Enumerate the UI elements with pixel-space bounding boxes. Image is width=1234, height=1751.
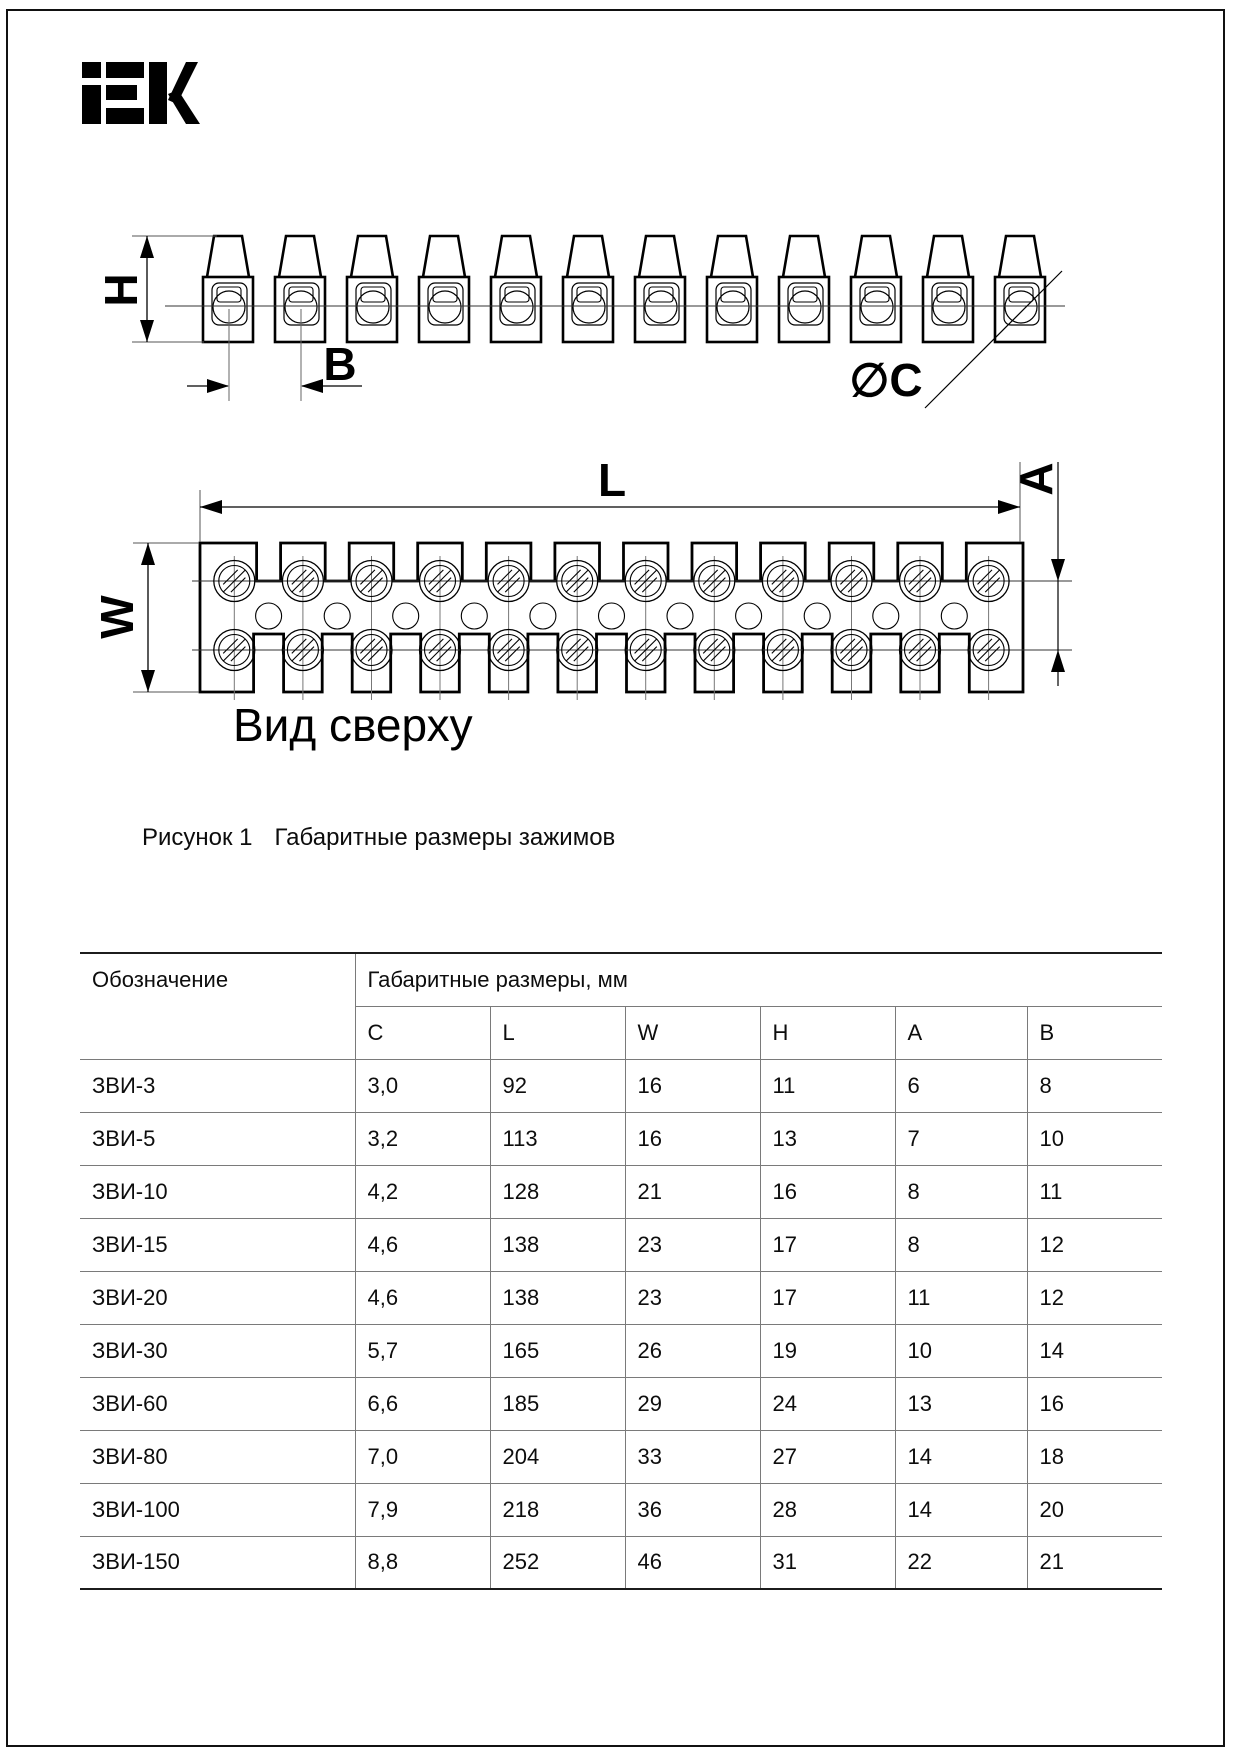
dim-label-C: ∅C	[849, 354, 922, 406]
table-row: ЗВИ-5 3,2 113 16 13 7 10	[80, 1112, 1162, 1165]
dim-label-L: L	[598, 454, 626, 506]
row-name: ЗВИ-60	[80, 1377, 355, 1430]
top-view-outline	[200, 543, 1023, 692]
subheader-L: L	[490, 1006, 625, 1059]
col-header-dimensions: Габаритные размеры, мм	[355, 953, 1162, 1006]
row-name: ЗВИ-3	[80, 1059, 355, 1112]
subheader-A: A	[895, 1006, 1027, 1059]
row-name: ЗВИ-150	[80, 1536, 355, 1589]
document-page: H B ∅C	[0, 0, 1234, 1751]
row-name: ЗВИ-100	[80, 1483, 355, 1536]
figure-drawings: H B ∅C	[0, 0, 1234, 810]
dimension-W: W	[91, 543, 199, 692]
table-row: ЗВИ-30 5,7 165 26 19 10 14	[80, 1324, 1162, 1377]
table-row: ЗВИ-80 7,0 204 33 27 14 18	[80, 1430, 1162, 1483]
row-name: ЗВИ-80	[80, 1430, 355, 1483]
dimension-L: L	[200, 454, 1020, 542]
top-view-drawing: L A W Вид сверху	[91, 454, 1072, 751]
dim-label-A: A	[1010, 462, 1062, 495]
dimension-H: H	[95, 236, 217, 342]
col-header-designation: Обозначение	[80, 953, 355, 1059]
side-view-drawing: H B ∅C	[95, 236, 1065, 408]
dim-label-H: H	[95, 273, 147, 306]
table-row: ЗВИ-15 4,6 138 23 17 8 12	[80, 1218, 1162, 1271]
row-name: ЗВИ-10	[80, 1165, 355, 1218]
subheader-B: B	[1027, 1006, 1162, 1059]
row-name: ЗВИ-30	[80, 1324, 355, 1377]
figure-caption-text: Габаритные размеры зажимов	[275, 824, 616, 851]
row-name: ЗВИ-5	[80, 1112, 355, 1165]
table-row: ЗВИ-100 7,9 218 36 28 14 20	[80, 1483, 1162, 1536]
top-view-caption: Вид сверху	[233, 699, 473, 751]
figure-caption: Рисунок 1Габаритные размеры зажимов	[142, 824, 615, 852]
row-name: ЗВИ-20	[80, 1271, 355, 1324]
subheader-W: W	[625, 1006, 760, 1059]
table-row: ЗВИ-60 6,6 185 29 24 13 16	[80, 1377, 1162, 1430]
subheader-H: H	[760, 1006, 895, 1059]
row-name: ЗВИ-15	[80, 1218, 355, 1271]
dimensions-table: Обозначение Габаритные размеры, мм C L W…	[80, 952, 1162, 1590]
table-row: ЗВИ-150 8,8 252 46 31 22 21	[80, 1536, 1162, 1589]
figure-number: Рисунок 1	[142, 824, 253, 851]
table-row: ЗВИ-20 4,6 138 23 17 11 12	[80, 1271, 1162, 1324]
table-row: ЗВИ-10 4,2 128 21 16 8 11	[80, 1165, 1162, 1218]
dim-label-B: B	[323, 338, 356, 390]
dim-label-W: W	[91, 595, 143, 639]
subheader-C: C	[355, 1006, 490, 1059]
table-row: ЗВИ-3 3,0 92 16 11 6 8	[80, 1059, 1162, 1112]
